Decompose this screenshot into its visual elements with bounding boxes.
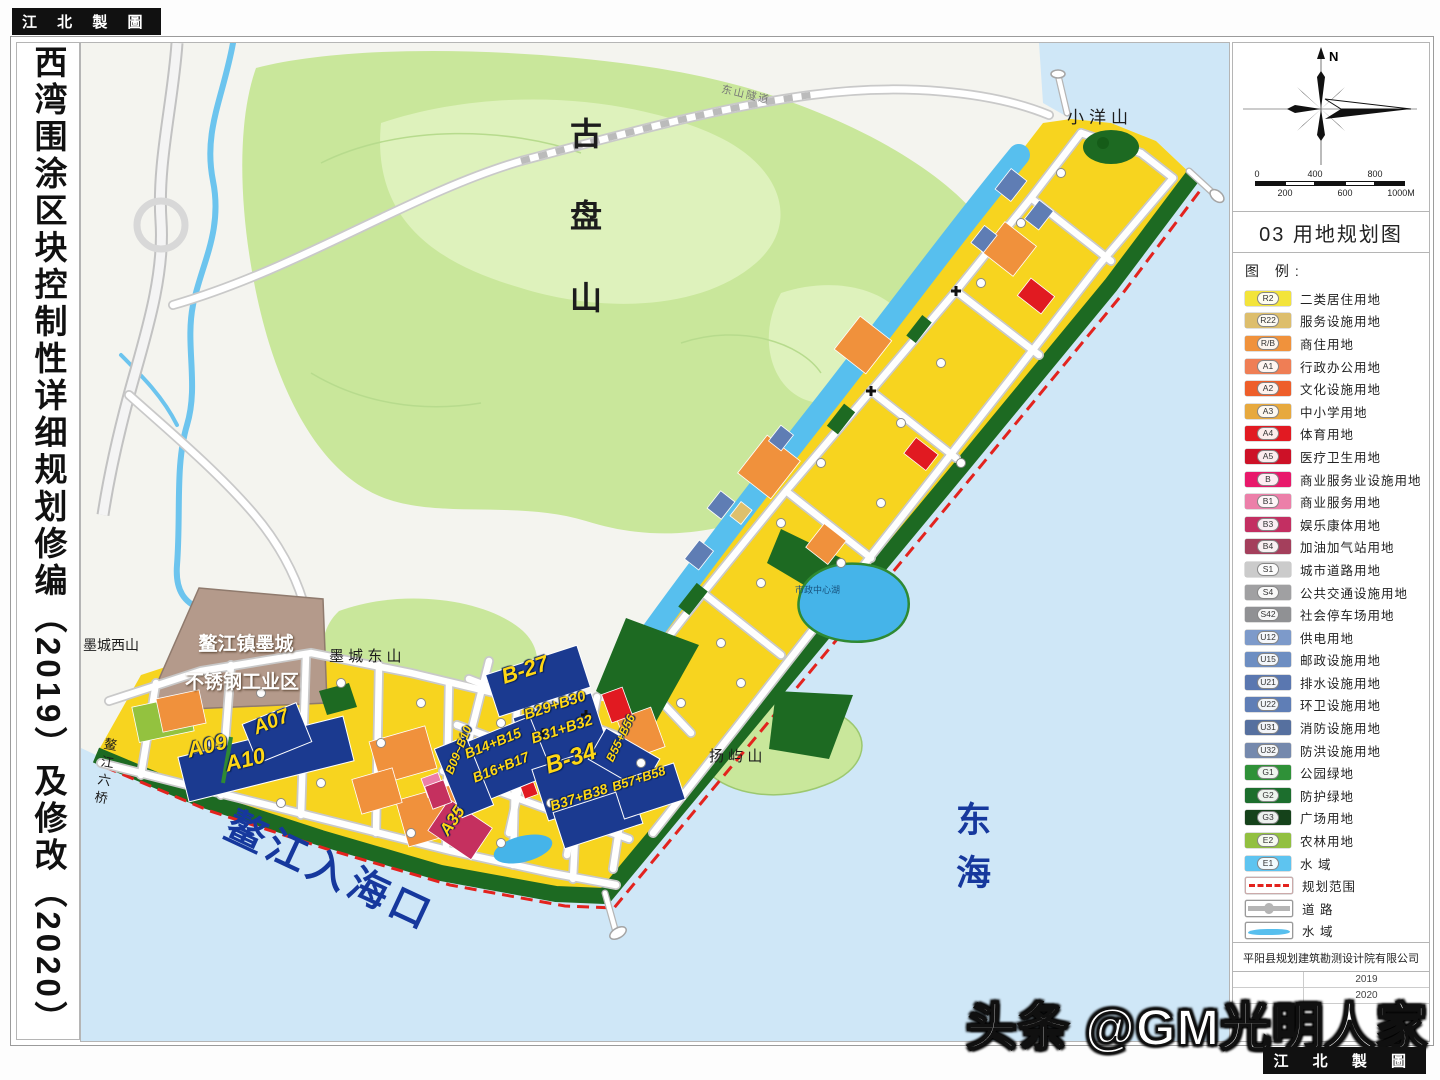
map-drawing — [81, 43, 1229, 1041]
legend-swatch: R2 — [1245, 291, 1291, 306]
legend-code: A2 — [1257, 382, 1279, 395]
label-mochengdongshan: 墨 城 东 山 — [329, 645, 402, 666]
scale-400: 400 — [1307, 169, 1322, 179]
label-mochengxishan: 墨城西山 — [83, 635, 139, 655]
legend-label: 二类居住用地 — [1300, 289, 1381, 308]
legend-code: U12 — [1257, 631, 1279, 644]
legend-label: 商业服务用地 — [1300, 492, 1381, 511]
legend: 图 例: R2 二类居住用地 R22 服务设施用地 R/B 商住用地 A1 行政… — [1233, 253, 1429, 942]
scale-800: 800 — [1367, 169, 1382, 179]
legend-label: 行政办公用地 — [1300, 357, 1381, 376]
design-institute-name: 平阳县规划建筑勘测设计院有限公司 — [1233, 942, 1429, 971]
compass-box: N 0 400 — [1233, 43, 1429, 212]
legend-code: U31 — [1257, 721, 1279, 734]
legend-swatch: A3 — [1245, 404, 1291, 419]
legend-code: B4 — [1257, 540, 1279, 553]
legend-item-S4: S4 公共交通设施用地 — [1245, 581, 1429, 604]
legend-label: 社会停车场用地 — [1300, 605, 1395, 624]
legend-label: 水 域 — [1302, 921, 1333, 940]
legend-swatch: S1 — [1245, 562, 1291, 577]
map-title-box: 03 用地规划图 — [1233, 212, 1429, 253]
map-title: 03 用地规划图 — [1259, 218, 1403, 247]
legend-item-U22: U22 环卫设施用地 — [1245, 694, 1429, 717]
legend-swatch: E1 — [1245, 856, 1291, 871]
legend-item-dash: 规划范围 — [1245, 874, 1429, 897]
legend-swatch: U21 — [1245, 675, 1291, 690]
legend-item-A3: A3 中小学用地 — [1245, 400, 1429, 423]
legend-label: 公共交通设施用地 — [1300, 583, 1408, 602]
date-label — [1233, 972, 1304, 987]
legend-item-R22: R22 服务设施用地 — [1245, 310, 1429, 333]
legend-swatch: R/B — [1245, 336, 1291, 351]
legend-label: 体育用地 — [1300, 424, 1354, 443]
legend-swatch: U32 — [1245, 743, 1291, 758]
stamp-bottom-right: 江 北 製 圖 — [1263, 1047, 1426, 1074]
legend-label: 环卫设施用地 — [1300, 695, 1381, 714]
legend-swatch: A4 — [1245, 426, 1291, 441]
legend-label: 规划范围 — [1302, 876, 1356, 895]
legend-item-B3: B3 娱乐康体用地 — [1245, 513, 1429, 536]
legend-code: A5 — [1257, 450, 1279, 463]
legend-swatch: R22 — [1245, 313, 1291, 328]
legend-item-A1: A1 行政办公用地 — [1245, 355, 1429, 378]
legend-label: 娱乐康体用地 — [1300, 515, 1381, 534]
legend-code: G2 — [1257, 789, 1279, 802]
legend-list: R2 二类居住用地 R22 服务设施用地 R/B 商住用地 A1 行政办公用地 … — [1245, 287, 1429, 942]
legend-item-G3: G3 广场用地 — [1245, 807, 1429, 830]
stamp-top-left: 江 北 製 圖 — [12, 8, 161, 35]
scale-1000m: 1000M — [1387, 188, 1415, 198]
label-yangyushan: 扬 屿 山 — [709, 745, 762, 766]
central-lake — [798, 564, 908, 642]
legend-swatch: U31 — [1245, 720, 1291, 735]
legend-swatch: B1 — [1245, 494, 1291, 509]
legend-label: 城市道路用地 — [1300, 560, 1381, 579]
legend-item-water: 水 域 — [1245, 920, 1429, 943]
legend-code: S1 — [1257, 563, 1279, 576]
legend-code: S42 — [1257, 608, 1279, 621]
legend-label: 消防设施用地 — [1300, 718, 1381, 737]
scale-600: 600 — [1337, 188, 1352, 198]
legend-swatch: B — [1245, 472, 1291, 487]
legend-code: U15 — [1257, 653, 1279, 666]
legend-code: G1 — [1257, 766, 1279, 779]
legend-swatch: E2 — [1245, 833, 1291, 848]
legend-code: U22 — [1257, 698, 1279, 711]
legend-swatch: G1 — [1245, 765, 1291, 780]
legend-item-U21: U21 排水设施用地 — [1245, 671, 1429, 694]
legend-code: U21 — [1257, 676, 1279, 689]
legend-item-road: 道 路 — [1245, 897, 1429, 920]
legend-swatch: B4 — [1245, 539, 1291, 554]
label-industrial-1: 鳌江镇墨城 — [181, 629, 311, 656]
legend-label: 文化设施用地 — [1300, 379, 1381, 398]
page: 江 北 製 圖 西湾围涂区块控制性详细规划修编（2019）及修改（2020） — [0, 0, 1440, 1080]
scale-200: 200 — [1277, 188, 1292, 198]
legend-swatch: G3 — [1245, 810, 1291, 825]
legend-code: U32 — [1257, 744, 1279, 757]
legend-code: A3 — [1257, 405, 1279, 418]
legend-item-B4: B4 加油加气站用地 — [1245, 536, 1429, 559]
legend-label: 医疗卫生用地 — [1300, 447, 1381, 466]
legend-swatch: A1 — [1245, 359, 1291, 374]
north-label: N — [1329, 49, 1338, 64]
legend-code: B3 — [1257, 518, 1279, 531]
legend-item-B: B 商业服务业设施用地 — [1245, 468, 1429, 491]
legend-swatch: A2 — [1245, 381, 1291, 396]
right-panel: N 0 400 — [1232, 42, 1430, 1042]
xiaoyangshan-island — [1083, 130, 1139, 164]
legend-item-U12: U12 供电用地 — [1245, 626, 1429, 649]
legend-label: 商住用地 — [1300, 334, 1354, 353]
label-xiaoyangshan: 小洋山 — [1067, 103, 1133, 128]
legend-swatch: A5 — [1245, 449, 1291, 464]
legend-code: A4 — [1257, 427, 1279, 440]
legend-label: 广场用地 — [1300, 808, 1354, 827]
legend-item-U15: U15 邮政设施用地 — [1245, 649, 1429, 672]
label-donghai: 东海 — [945, 801, 996, 907]
legend-swatch — [1245, 922, 1293, 939]
legend-code: R/B — [1257, 337, 1279, 350]
legend-item-R2: R2 二类居住用地 — [1245, 287, 1429, 310]
legend-item-A5: A5 医疗卫生用地 — [1245, 445, 1429, 468]
legend-item-A2: A2 文化设施用地 — [1245, 377, 1429, 400]
legend-label: 农林用地 — [1300, 831, 1354, 850]
legend-item-B1: B1 商业服务用地 — [1245, 490, 1429, 513]
date-value: 2019 — [1304, 972, 1429, 987]
legend-header: 图 例: — [1245, 261, 1429, 281]
legend-code: E2 — [1257, 834, 1279, 847]
legend-code: R22 — [1257, 314, 1279, 327]
legend-label: 公园绿地 — [1300, 763, 1354, 782]
legend-label: 水 域 — [1300, 854, 1331, 873]
legend-swatch: U15 — [1245, 652, 1291, 667]
scale-bar: 0 400 800 200 600 1000M — [1255, 171, 1407, 197]
legend-label: 中小学用地 — [1300, 402, 1368, 421]
legend-code: B — [1257, 473, 1279, 486]
legend-label: 防洪设施用地 — [1300, 741, 1381, 760]
legend-swatch: B3 — [1245, 517, 1291, 532]
legend-label: 服务设施用地 — [1300, 311, 1381, 330]
map-area: 古盘山 小洋山 墨城西山 墨 城 东 山 鳌江镇墨城 不锈钢工业区 扬 屿 山 … — [80, 42, 1230, 1042]
legend-swatch — [1245, 877, 1293, 894]
legend-code: E1 — [1257, 857, 1279, 870]
legend-label: 道 路 — [1302, 899, 1333, 918]
legend-swatch: U22 — [1245, 697, 1291, 712]
scale-0: 0 — [1254, 169, 1259, 179]
legend-item-S1: S1 城市道路用地 — [1245, 558, 1429, 581]
legend-item-U32: U32 防洪设施用地 — [1245, 739, 1429, 762]
legend-swatch: S42 — [1245, 607, 1291, 622]
legend-code: S4 — [1257, 586, 1279, 599]
legend-swatch: G2 — [1245, 788, 1291, 803]
legend-label: 商业服务业设施用地 — [1300, 470, 1422, 489]
legend-label: 排水设施用地 — [1300, 673, 1381, 692]
label-gupanshan: 古盘山 — [561, 117, 607, 363]
legend-swatch: U12 — [1245, 630, 1291, 645]
legend-item-E2: E2 农林用地 — [1245, 829, 1429, 852]
legend-label: 供电用地 — [1300, 628, 1354, 647]
legend-code: G3 — [1257, 811, 1279, 824]
legend-code: A1 — [1257, 360, 1279, 373]
legend-item-U31: U31 消防设施用地 — [1245, 716, 1429, 739]
legend-item-A4: A4 体育用地 — [1245, 423, 1429, 446]
plan-title-vertical: 西湾围涂区块控制性详细规划修编（2019）及修改（2020） — [17, 45, 79, 1038]
legend-item-S42: S42 社会停车场用地 — [1245, 603, 1429, 626]
label-industrial-2: 不锈钢工业区 — [167, 667, 317, 694]
legend-item-E1: E1 水 域 — [1245, 852, 1429, 875]
legend-item-G1: G1 公园绿地 — [1245, 761, 1429, 784]
legend-swatch: S4 — [1245, 585, 1291, 600]
legend-label: 防护绿地 — [1300, 786, 1354, 805]
legend-label: 加油加气站用地 — [1300, 537, 1395, 556]
legend-swatch — [1245, 900, 1293, 917]
legend-code: R2 — [1257, 292, 1279, 305]
legend-code: B1 — [1257, 495, 1279, 508]
legend-item-R/B: R/B 商住用地 — [1245, 332, 1429, 355]
legend-label: 邮政设施用地 — [1300, 650, 1381, 669]
legend-item-G2: G2 防护绿地 — [1245, 784, 1429, 807]
plan-title-column: 西湾围涂区块控制性详细规划修编（2019）及修改（2020） — [16, 42, 80, 1040]
label-central-lake: 市政中心湖 — [795, 583, 840, 596]
